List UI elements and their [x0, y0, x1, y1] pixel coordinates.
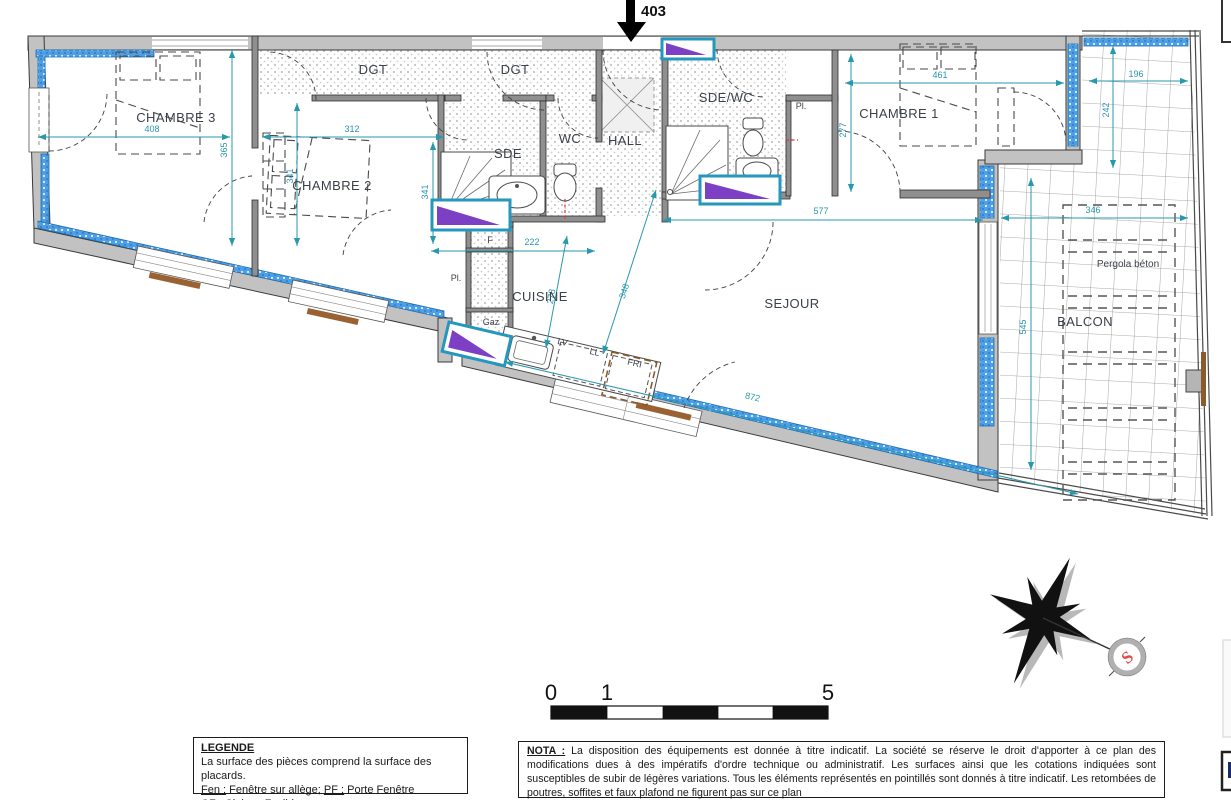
bed-chambre2: [266, 135, 370, 218]
compass-rose: S: [957, 532, 1146, 711]
balcony-window-strip: [1084, 38, 1188, 46]
legend-box: LEGENDE La surface des pièces comprend l…: [193, 737, 468, 794]
dim-312: 312: [344, 124, 359, 134]
dim-872: 872: [744, 391, 761, 404]
bed-chambre3: [116, 52, 200, 154]
window-bay-sdewc-north: [662, 39, 714, 59]
window-bay-sde: [432, 200, 510, 230]
bed-chambre1: [900, 44, 976, 146]
room-label-hall: HALL: [608, 133, 642, 148]
room-label-balcon: BALCON: [1057, 314, 1113, 329]
dim-545: 545: [1018, 319, 1028, 334]
room-label-wc: WC: [559, 131, 581, 146]
closet-chambre1: [998, 88, 1014, 146]
compass-star: [957, 532, 1122, 706]
label-gaz: Gaz: [483, 317, 500, 327]
balcony-tiles-upper: [1082, 30, 1196, 163]
room-label-dgt-a: DGT: [359, 62, 388, 77]
nota-box: NOTA : La disposition des équipements es…: [518, 741, 1165, 798]
wall-bottom-left: [34, 228, 448, 333]
dim-346: 346: [1085, 205, 1100, 215]
label-f: F: [487, 235, 493, 245]
dim-222: 222: [524, 237, 539, 247]
nota-text: La disposition des équipements est donné…: [527, 745, 1156, 799]
dim-408: 408: [144, 124, 159, 134]
dim-577: 577: [813, 206, 828, 216]
label-placard-b: Pl.: [451, 273, 462, 283]
dim-242: 242: [1101, 102, 1111, 117]
nota-label: NOTA :: [527, 745, 565, 757]
label-placard-a: Pl.: [796, 101, 807, 111]
window-bay-sdewc-south: [700, 176, 780, 204]
legend-title: LEGENDE: [201, 742, 254, 754]
room-label-sdewc: SDE/WC: [699, 90, 753, 105]
room-label-chambre1: CHAMBRE 1: [859, 106, 938, 121]
scale-tick-1: 1: [601, 680, 613, 705]
dim-461: 461: [932, 70, 947, 80]
dim-341b: 341: [420, 184, 430, 199]
scale-tick-5: 5: [822, 680, 834, 705]
room-label-dgt-b: DGT: [501, 62, 530, 77]
room-label-chambre3: CHAMBRE 3: [136, 110, 215, 125]
scale-bar: 0 1 5: [545, 680, 834, 719]
hall-shaft: [600, 78, 654, 132]
dim-196: 196: [1128, 69, 1143, 79]
floor-plan-drawing: 408 312 365 341 341 222 278 348 577 872 …: [0, 0, 1231, 800]
dim-365: 365: [219, 142, 229, 157]
legend-line-fen-pf: Fen : Fenêtre sur allège; PF : Porte Fen…: [201, 783, 460, 797]
entrance-number: 403: [641, 3, 666, 20]
scale-tick-0: 0: [545, 680, 557, 705]
wall-step-balcony: [985, 150, 1082, 164]
label-pergola: Pergola béton: [1097, 259, 1159, 270]
room-label-chambre2: CHAMBRE 2: [292, 178, 371, 193]
floor-plan-sheet: 408 312 365 341 341 222 278 348 577 872 …: [0, 0, 1231, 800]
edge-clipped-boxes: [1222, 0, 1231, 790]
dim-277: 277: [838, 122, 848, 137]
wood-threshold: [1201, 352, 1206, 406]
dim-348: 348: [617, 282, 631, 299]
room-label-cuisine: CUISINE: [512, 289, 568, 304]
room-label-sde: SDE: [494, 146, 522, 161]
legend-line-surface: La surface des pièces comprend la surfac…: [201, 755, 460, 783]
room-label-sejour: SEJOUR: [764, 296, 819, 311]
